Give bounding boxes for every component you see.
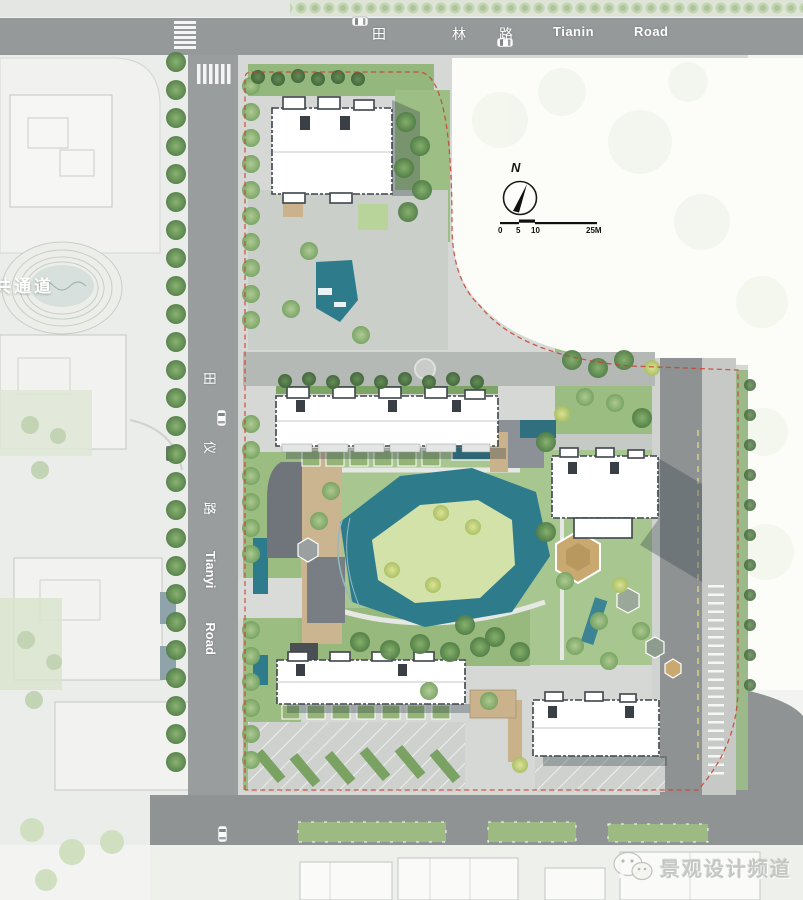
- scale-tick: 5: [516, 226, 520, 235]
- wechat-icon: [610, 849, 654, 885]
- road-label-en: Road: [634, 24, 669, 39]
- scale-tick: 10: [531, 226, 540, 235]
- north-arrow-icon: [492, 160, 622, 245]
- road-label-char: 田: [202, 372, 221, 385]
- north-arrow-and-scale: N 0 5 10 25M: [492, 160, 622, 245]
- road-label-char: 路: [202, 502, 221, 515]
- west-entrance-plaza: [238, 578, 308, 618]
- road-label-char: 林: [452, 24, 467, 44]
- slab-building-south: [277, 652, 465, 704]
- site-plan-graphic: [0, 0, 803, 900]
- tower-southeast: [533, 692, 659, 756]
- road-label-en: Road: [204, 622, 219, 655]
- north-hedge-row: [290, 0, 803, 16]
- road-label-en: Tianyi: [204, 551, 219, 588]
- watermark-text: 景观设计频道: [660, 853, 792, 882]
- scale-tick: 0: [498, 226, 502, 235]
- road-label-char: 仪: [202, 441, 221, 454]
- road-label-char: 路: [499, 24, 514, 44]
- public-passage-label: 共通道: [0, 272, 54, 297]
- scale-tick: 25M: [586, 226, 602, 235]
- landscape-master-plan: 田 林 路 Tianin Road 田 仪 路 Tianyi Road 共通道 …: [0, 0, 803, 900]
- tower-1: [272, 97, 392, 203]
- tianyi-road-label: 田 仪 路 Tianyi Road: [201, 372, 221, 692]
- watermark: 景观设计频道: [610, 845, 803, 889]
- slab-building-mid: [276, 387, 498, 452]
- road-label-char: 田: [372, 24, 387, 44]
- road-label-en: Tianin: [553, 24, 594, 39]
- tianlin-road-label: 田 林 路 Tianin Road: [0, 24, 803, 42]
